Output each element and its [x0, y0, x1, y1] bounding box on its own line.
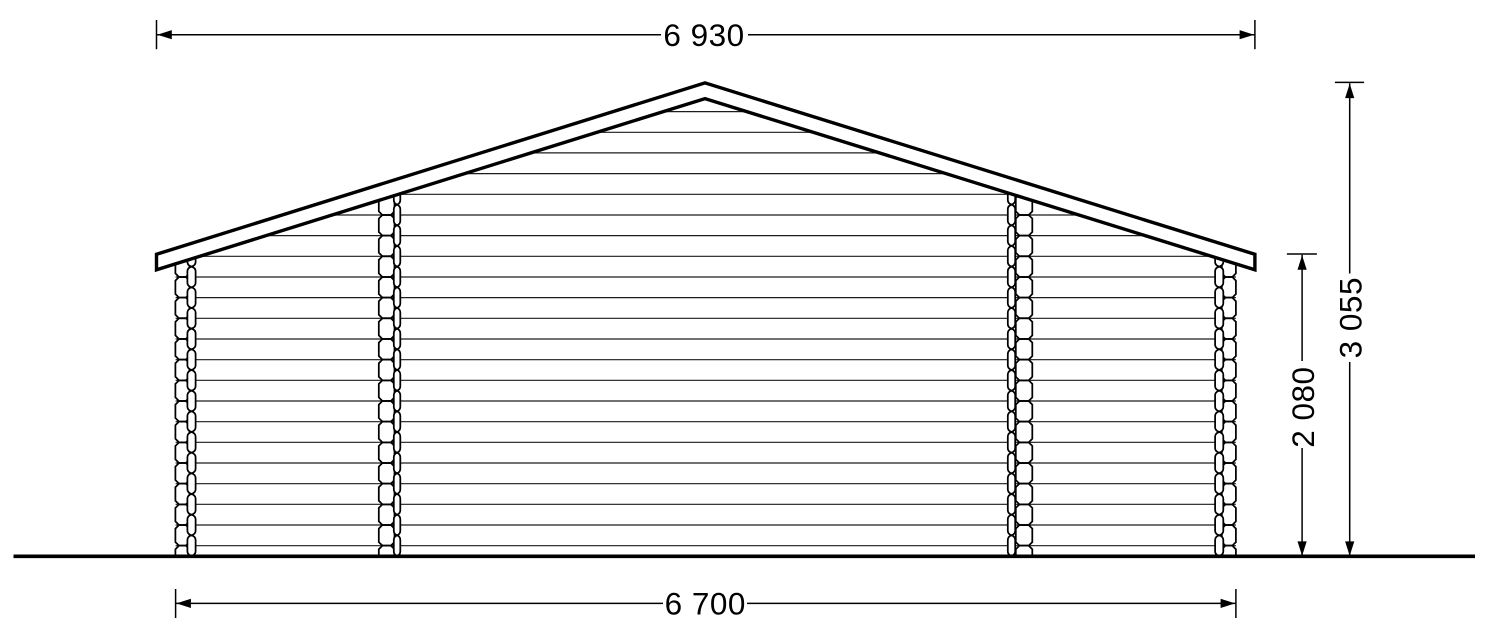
svg-text:3 055: 3 055: [1333, 277, 1369, 358]
svg-text:6 930: 6 930: [663, 17, 744, 53]
svg-text:6 700: 6 700: [665, 586, 746, 622]
svg-text:2 080: 2 080: [1285, 366, 1321, 447]
